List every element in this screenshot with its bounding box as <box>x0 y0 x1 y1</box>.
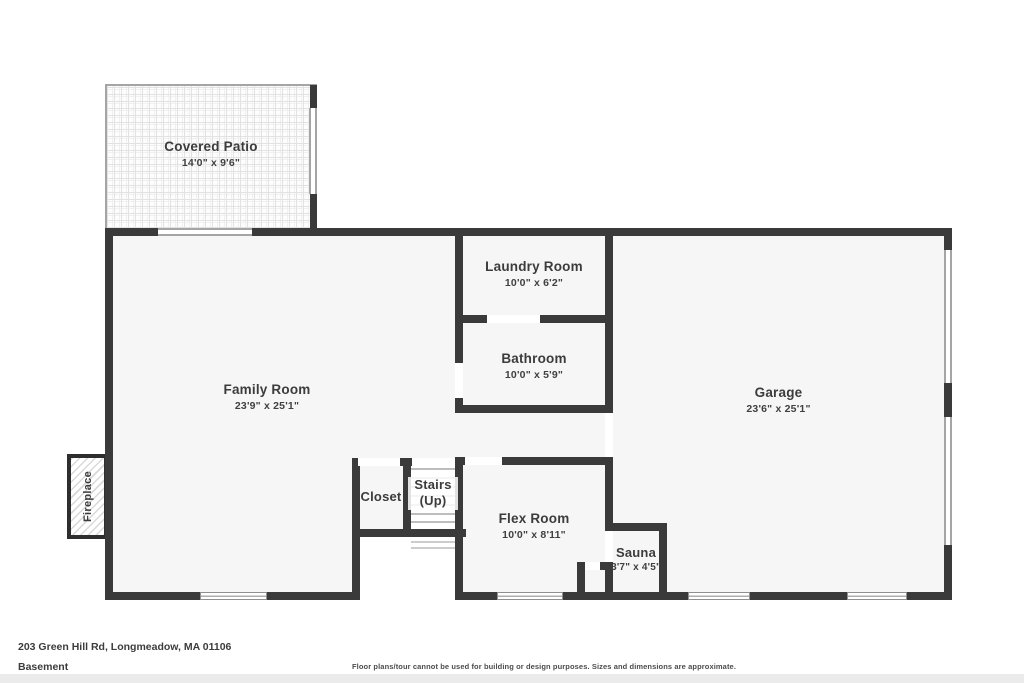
wall-segment <box>605 523 667 531</box>
room-name: Garage <box>613 385 944 402</box>
room-label-sauna: Sauna 3'7" x 4'5" <box>604 545 668 575</box>
wall-segment <box>310 85 317 110</box>
fireplace: Fireplace <box>67 454 108 539</box>
room-name-sub: (Up) <box>408 493 458 509</box>
room-name: Closet <box>352 489 410 505</box>
window <box>847 592 907 600</box>
wall-segment <box>267 592 360 600</box>
room-name: Sauna <box>604 545 668 561</box>
wall-segment <box>105 228 113 600</box>
room-name: Stairs <box>408 477 458 493</box>
wall-segment <box>455 315 487 323</box>
window <box>944 417 952 545</box>
room-label-closet: Closet <box>352 489 410 505</box>
floor-label: Basement <box>18 661 68 673</box>
room-dimensions: 3'7" x 4'5" <box>604 562 668 575</box>
room-label-bathroom: Bathroom 10'0" x 5'9" <box>463 351 605 382</box>
wall-segment <box>750 592 847 600</box>
window <box>200 592 267 600</box>
floor-plan-page: Fireplace Co <box>0 0 1024 683</box>
room-name: Bathroom <box>463 351 605 368</box>
room-name: Covered Patio <box>105 139 317 156</box>
room-label-flex-room: Flex Room 10'0" x 8'11" <box>463 511 605 542</box>
room-dimensions: 23'6" x 25'1" <box>613 403 944 416</box>
door-opening <box>455 363 463 398</box>
wall-segment <box>577 562 585 600</box>
window <box>688 592 750 600</box>
door-opening <box>585 562 600 570</box>
room-label-family-room: Family Room 23'9" x 25'1" <box>117 382 417 413</box>
disclaimer-text: Floor plans/tour cannot be used for buil… <box>352 662 736 671</box>
wall-segment <box>944 545 952 600</box>
door-opening <box>358 458 400 466</box>
stair-tread <box>411 468 455 470</box>
door-opening <box>465 457 502 465</box>
window <box>944 250 952 383</box>
wall-segment <box>455 405 613 413</box>
room-label-stairs: Stairs (Up) <box>408 477 458 510</box>
room-name: Flex Room <box>463 511 605 528</box>
wall-segment <box>310 192 317 229</box>
property-address: 203 Green Hill Rd, Longmeadow, MA 01106 <box>18 641 231 653</box>
room-label-laundry-room: Laundry Room 10'0" x 6'2" <box>463 259 605 290</box>
room-dimensions: 14'0" x 9'6" <box>105 157 317 170</box>
stair-tread <box>411 521 455 523</box>
window <box>158 228 252 236</box>
wall-segment <box>605 228 613 413</box>
window <box>497 592 563 600</box>
wall-segment <box>352 529 466 537</box>
wall-segment <box>105 592 200 600</box>
wall-segment <box>605 457 613 531</box>
wall-segment <box>455 228 463 363</box>
door-opening <box>605 413 613 457</box>
wall-segment <box>944 383 952 417</box>
stair-tread <box>411 513 455 515</box>
room-name: Laundry Room <box>463 259 605 276</box>
room-dimensions: 10'0" x 6'2" <box>463 277 605 290</box>
room-label-garage: Garage 23'6" x 25'1" <box>613 385 944 416</box>
room-label-covered-patio: Covered Patio 14'0" x 9'6" <box>105 139 317 170</box>
wall-segment <box>540 315 613 323</box>
stair-tread <box>411 541 455 543</box>
room-dimensions: 23'9" x 25'1" <box>117 400 417 413</box>
fireplace-label: Fireplace <box>82 471 94 522</box>
stair-tread <box>411 547 455 549</box>
wall-segment <box>502 457 613 465</box>
wall-segment <box>944 228 952 250</box>
door-opening <box>487 315 540 323</box>
wall-segment <box>252 228 952 236</box>
footer-strip <box>0 674 1024 683</box>
room-dimensions: 10'0" x 5'9" <box>463 369 605 382</box>
room-dimensions: 10'0" x 8'11" <box>463 529 605 542</box>
room-name: Family Room <box>117 382 417 399</box>
